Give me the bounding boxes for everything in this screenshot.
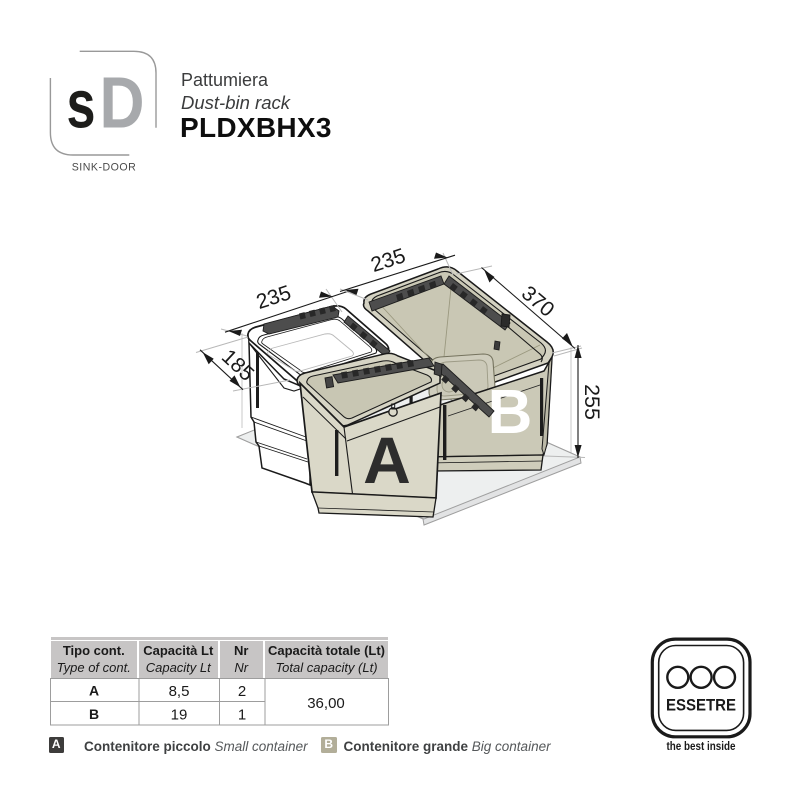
svg-text:255: 255: [580, 384, 604, 420]
svg-text:8,5: 8,5: [169, 683, 190, 700]
svg-text:SINK-DOOR: SINK-DOOR: [72, 162, 137, 174]
svg-text:A: A: [89, 683, 99, 699]
svg-text:A: A: [363, 423, 411, 497]
svg-text:B: B: [488, 378, 533, 447]
svg-text:B: B: [89, 706, 99, 722]
svg-text:235: 235: [254, 281, 294, 314]
svg-text:19: 19: [171, 707, 188, 724]
svg-text:s: s: [67, 67, 96, 143]
svg-text:370: 370: [517, 282, 559, 322]
svg-text:1: 1: [238, 707, 246, 724]
svg-text:ESSETRE: ESSETRE: [666, 697, 736, 715]
svg-text:D: D: [100, 64, 145, 144]
svg-text:36,00: 36,00: [307, 695, 345, 712]
svg-text:2: 2: [238, 683, 246, 700]
svg-text:the best inside: the best inside: [667, 739, 736, 753]
